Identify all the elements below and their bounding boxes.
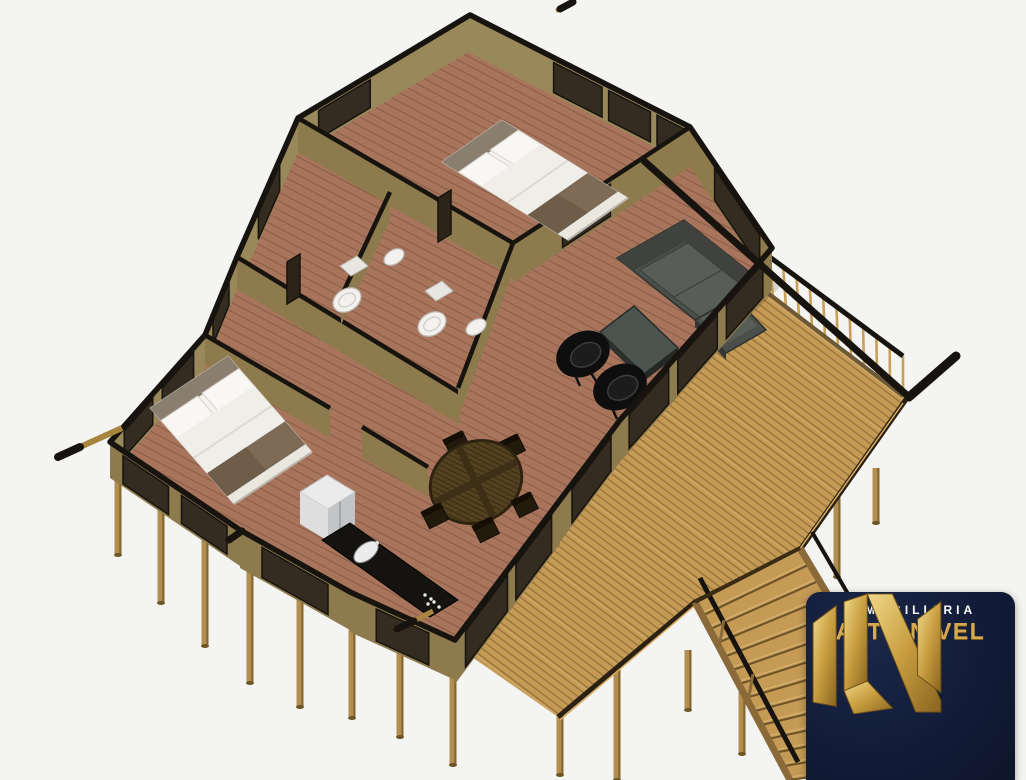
door-panel [287, 254, 300, 304]
stove-knob [429, 597, 432, 600]
agency-watermark-logo: INMOBILIARIA ALTO NIVEL [806, 592, 1015, 780]
floorplan-page: INMOBILIARIA ALTO NIVEL [0, 0, 1026, 780]
door-panel [438, 190, 451, 242]
in-monogram-icon [806, 592, 944, 714]
stove-knob [426, 602, 429, 605]
stove-knob [437, 605, 440, 608]
stove-knob [423, 593, 426, 596]
stove-knob [432, 600, 435, 603]
